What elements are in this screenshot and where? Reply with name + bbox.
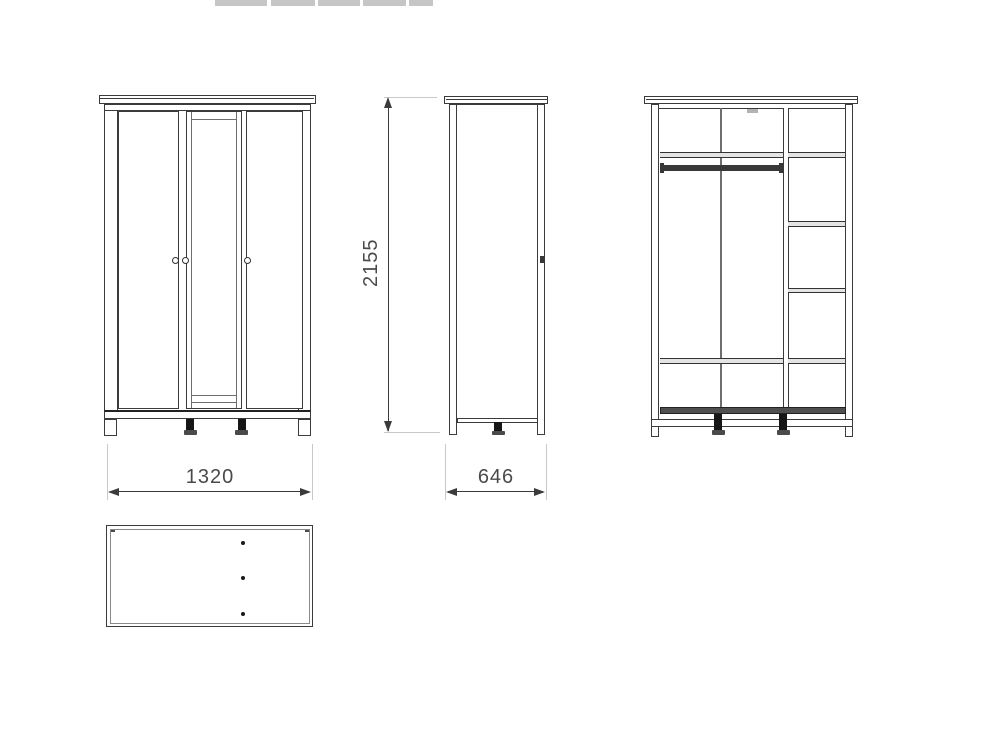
- interior-cornice-edge-line: [646, 99, 857, 100]
- interior-left-stile: [651, 104, 659, 437]
- interior-right-stile: [845, 104, 853, 437]
- interior-right-shelf-2: [788, 221, 845, 227]
- front-adjustable-foot-1: [186, 419, 194, 431]
- watermark-bar: [215, 0, 267, 6]
- front-middle-door: [186, 111, 242, 409]
- watermark-bar: [409, 0, 433, 6]
- top-view-fitting-dot-3: [241, 612, 245, 616]
- front-cornice-edge-line: [100, 98, 314, 99]
- interior-top-notch: [747, 109, 758, 113]
- depth-extension-line-right: [546, 444, 547, 500]
- front-adjustable-foot-2: [238, 419, 246, 431]
- front-right-leg: [298, 419, 311, 437]
- side-foot-base: [492, 431, 505, 435]
- top-view-fitting-dot-1: [241, 541, 245, 545]
- front-right-door: [246, 111, 303, 409]
- arrow-right-icon: [534, 488, 545, 496]
- middle-door-frame-bottom-line: [191, 395, 238, 396]
- middle-door-frame-left-line: [191, 112, 192, 408]
- side-back-stile: [537, 104, 545, 435]
- interior-bottom-rail: [651, 419, 853, 427]
- interior-right-shelf-4: [788, 358, 845, 364]
- hanging-rail: [663, 165, 780, 172]
- width-extension-line-right: [312, 444, 313, 500]
- arrow-left-icon: [108, 488, 119, 496]
- arrow-down-icon: [384, 421, 392, 432]
- height-dimension-line: [388, 99, 389, 431]
- height-dimension-label: 2155: [357, 243, 385, 287]
- interior-bottom-panel: [660, 407, 846, 414]
- top-view-inner-edge: [110, 529, 310, 624]
- middle-door-frame-bottom-line2: [191, 402, 238, 403]
- interior-foot-base-2: [777, 430, 790, 435]
- hanging-rail-bracket-left: [660, 163, 665, 174]
- interior-left-top-shelf: [660, 152, 783, 158]
- front-top-cornice: [99, 95, 316, 104]
- watermark-bar: [271, 0, 315, 6]
- side-door-knob-icon: [540, 256, 545, 263]
- front-left-door: [118, 111, 179, 409]
- arrow-left-icon: [446, 488, 457, 496]
- width-dimension-label: 1320: [175, 466, 245, 489]
- front-foot-base-1: [184, 430, 197, 435]
- side-top-cornice: [444, 96, 548, 104]
- side-top-line: [456, 104, 537, 105]
- left-door-knob-icon: [172, 257, 179, 264]
- technical-drawing-canvas: 1320 2155 646: [0, 0, 1000, 750]
- arrow-up-icon: [384, 97, 392, 108]
- height-extension-line-bottom: [384, 432, 440, 433]
- width-dimension-line: [110, 491, 309, 492]
- interior-foot-base-1: [712, 430, 725, 435]
- interior-adjustable-foot-1: [714, 414, 722, 431]
- interior-adjustable-foot-2: [779, 414, 787, 431]
- top-view-fitting-dot-2: [241, 576, 245, 580]
- watermark-bar: [363, 0, 406, 6]
- interior-right-shelf-1: [788, 152, 845, 158]
- watermark-bar: [318, 0, 360, 6]
- right-door-knob-icon: [244, 257, 251, 264]
- arrow-right-icon: [300, 488, 311, 496]
- middle-door-knob-icon: [182, 257, 189, 264]
- middle-door-frame-right-line: [236, 112, 237, 408]
- front-foot-base-2: [235, 430, 248, 435]
- front-bottom-rail: [104, 410, 311, 419]
- hanging-rail-bracket-right: [779, 163, 784, 174]
- interior-left-bottom-shelf: [660, 358, 783, 364]
- interior-top-cornice: [644, 96, 858, 104]
- interior-right-shelf-3: [788, 288, 845, 294]
- depth-dimension-line: [448, 491, 543, 492]
- top-view-corner-mark-right: [305, 530, 309, 532]
- top-view-corner-mark-left: [111, 530, 115, 532]
- side-front-stile: [449, 104, 457, 435]
- middle-door-frame-top-line: [191, 119, 238, 120]
- depth-dimension-label: 646: [461, 466, 531, 489]
- front-left-leg: [104, 419, 117, 437]
- side-cornice-edge-line: [446, 99, 547, 100]
